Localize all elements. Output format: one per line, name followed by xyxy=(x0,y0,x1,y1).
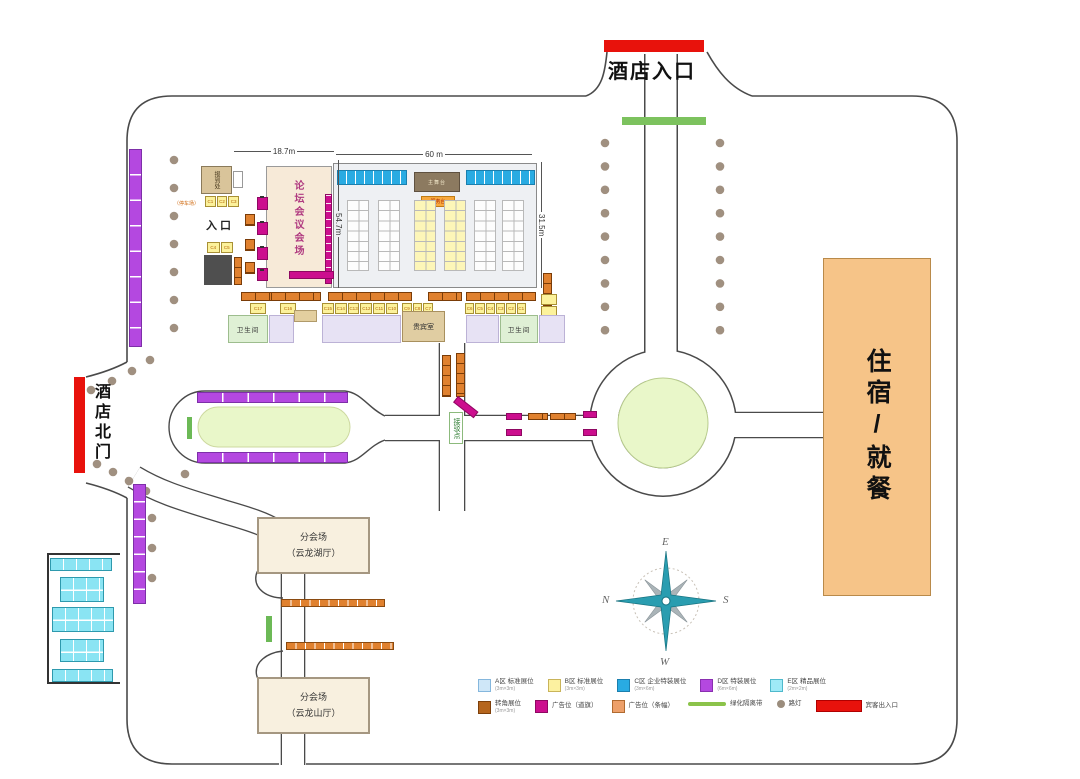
dimension-forum-depth: 54.7m xyxy=(334,160,343,288)
booth-orange-strip xyxy=(234,257,242,285)
ad-strip xyxy=(550,413,576,420)
legend-item: C区 企业特装展位(3m×6m) xyxy=(617,678,686,692)
legend-swatch xyxy=(777,700,785,708)
booth-yellow xyxy=(541,294,557,305)
legend-row-1: A区 标准展位(3m×3m)B区 标准展位(3m×3m)C区 企业特装展位(3m… xyxy=(478,678,840,692)
booth-orange xyxy=(245,214,255,226)
legend-item: E区 精品展位(2m×2m) xyxy=(770,678,826,692)
booth-cell: C5 xyxy=(221,242,234,253)
booth-orange xyxy=(245,239,255,251)
booth-block-cyan xyxy=(60,577,104,602)
booth-strip-purple-top xyxy=(197,392,348,403)
c-booth-group: C17C16 xyxy=(250,303,296,314)
booth-row-blue-left xyxy=(337,170,407,185)
seat-mark xyxy=(260,196,264,198)
ad-strip xyxy=(528,413,548,420)
booth-cell: C4 xyxy=(207,242,220,253)
corridor-strip xyxy=(466,315,499,343)
sub-venue-lake: 分会场 （云龙湖厅） xyxy=(257,517,370,574)
legend-item: A区 标准展位(3m×3m) xyxy=(478,678,534,692)
legend-swatch xyxy=(770,679,783,692)
ad-strip xyxy=(583,411,597,418)
vip-room: 贵宾室 xyxy=(402,311,445,342)
seat-mark xyxy=(260,246,264,248)
legend-swatch xyxy=(816,700,862,712)
booth-cell: C3 xyxy=(228,196,239,207)
booth-block-cyan xyxy=(52,607,114,632)
dimension-main-depth: 31.5m xyxy=(537,162,546,288)
booth-row-blue-right xyxy=(466,170,535,185)
booth-cell: C3 xyxy=(496,303,505,314)
legend-swatch xyxy=(478,679,491,692)
compass-rose xyxy=(616,551,716,651)
booth-row-orange-small xyxy=(286,642,394,650)
booth-row-orange xyxy=(271,292,321,301)
toilet-right: 卫生间 xyxy=(500,315,538,343)
corridor-strip xyxy=(269,315,294,343)
booth-row-orange xyxy=(241,292,275,301)
booth-row-cyan xyxy=(52,669,113,682)
toilet-left: 卫生间 xyxy=(228,315,268,343)
legend-item: B区 标准展位(3m×3m) xyxy=(548,678,604,692)
booth-orange xyxy=(245,262,255,274)
small-tag xyxy=(233,171,243,188)
booth-row-orange xyxy=(466,292,536,301)
c-booth-group: C15C14C13C12C11C10 xyxy=(322,303,398,314)
corridor-strip xyxy=(539,315,565,343)
registration-label: 报到处 xyxy=(212,171,221,189)
booth-block-cyan xyxy=(60,639,104,662)
legend-item: 广告位（道旗） xyxy=(535,700,598,713)
booth-cell: C12 xyxy=(360,303,372,314)
booth-magenta xyxy=(257,222,268,235)
forum-bottom-strip xyxy=(289,271,334,279)
west-lawn xyxy=(198,407,350,447)
kiosk xyxy=(294,310,317,322)
shuttle-point-label: 接驳点 xyxy=(449,412,463,444)
booth-cell: C15 xyxy=(322,303,334,314)
booth-column xyxy=(474,200,496,271)
booth-row-cyan xyxy=(50,558,112,571)
booth-cell: C11 xyxy=(373,303,385,314)
ad-strip-vertical xyxy=(442,355,451,397)
main-entrance-bar xyxy=(604,40,704,52)
legend-item: D区 特装展位(6m×6m) xyxy=(700,678,756,692)
legend-item: 宾客出入口 xyxy=(816,700,899,712)
booth-magenta xyxy=(257,197,268,210)
legend-item: 绿化隔离带 xyxy=(688,700,763,708)
main-entrance-label: 酒店入口 xyxy=(608,55,696,84)
c-booth-group: C6C5C4C3C2C1 xyxy=(465,303,526,314)
compass-west: W xyxy=(660,656,669,668)
booth-column xyxy=(502,200,524,271)
roundabout-lawn xyxy=(618,378,708,468)
ad-strip xyxy=(506,429,522,436)
corridor-strip xyxy=(322,315,401,343)
booth-cell: C10 xyxy=(386,303,398,314)
legend-swatch xyxy=(700,679,713,692)
reg-booth-box: C4C5 xyxy=(207,242,233,253)
legend-swatch xyxy=(478,701,491,714)
main-stage: 主舞台 xyxy=(414,172,460,192)
forum-hall-title: 论坛会议会场 xyxy=(290,180,305,280)
booth-row-orange xyxy=(428,292,462,301)
utility-building xyxy=(204,255,232,285)
booth-strip-purple-left xyxy=(129,149,142,347)
lodging-label: 住宿/就餐 xyxy=(859,348,895,506)
booth-strip-purple-left-lower xyxy=(133,484,146,604)
green-strip xyxy=(266,616,272,642)
legend-row-2: 转角展位(3m×3m)广告位（道旗）广告位（条幅）绿化隔离带路灯宾客出入口 xyxy=(478,700,912,714)
booth-column xyxy=(444,200,466,271)
lodging-building: 住宿/就餐 xyxy=(823,258,931,596)
booth-cell: C6 xyxy=(465,303,474,314)
entrance-small-label: 入口 xyxy=(206,217,234,233)
booth-cell: C1 xyxy=(517,303,526,314)
compass-east: E xyxy=(662,536,669,548)
ad-strip-vertical xyxy=(456,353,465,397)
green-belt-bar xyxy=(622,117,706,125)
legend-swatch xyxy=(612,700,625,713)
compass-north: N xyxy=(602,594,609,606)
ad-strip xyxy=(583,429,597,436)
compass-south: S xyxy=(723,594,729,606)
dimension-forum-width: 18.7m xyxy=(234,147,334,156)
map-canvas: 酒店入口 酒店北门 主舞台 服务台 论坛会议会场 18.7m 60 m 54.7… xyxy=(0,0,1080,779)
booth-cell: C14 xyxy=(335,303,347,314)
booth-cell: C4 xyxy=(486,303,495,314)
legend-item: 转角展位(3m×3m) xyxy=(478,700,521,714)
booth-magenta xyxy=(257,247,268,260)
booth-column xyxy=(347,200,369,271)
legend-item: 路灯 xyxy=(777,700,802,708)
booth-column xyxy=(414,200,436,271)
booth-cell: C2 xyxy=(506,303,515,314)
main-stage-label: 主舞台 xyxy=(428,179,446,186)
booth-cell: C5 xyxy=(475,303,484,314)
booth-row-orange xyxy=(328,292,412,301)
booth-row-orange-small xyxy=(281,599,385,607)
reg-booth-strip: C1C2C3 xyxy=(205,196,239,207)
booth-cell: C1 xyxy=(205,196,216,207)
ad-strip xyxy=(506,413,522,420)
seat-mark xyxy=(260,221,264,223)
legend-swatch xyxy=(688,702,726,706)
north-gate-label: 酒店北门 xyxy=(88,383,112,475)
booth-cell: C17 xyxy=(250,303,266,314)
legend-item: 广告位（条幅） xyxy=(612,700,675,713)
seat-mark xyxy=(260,269,264,271)
north-gate-bar xyxy=(74,377,85,473)
legend-swatch xyxy=(548,679,561,692)
booth-column xyxy=(378,200,400,271)
legend-swatch xyxy=(535,700,548,713)
booth-cell: C13 xyxy=(348,303,360,314)
registration-office: 报到处 xyxy=(201,166,232,194)
legend-swatch xyxy=(617,679,630,692)
booth-strip-purple-bottom xyxy=(197,452,348,463)
sub-venue-mountain: 分会场 （云龙山厅） xyxy=(257,677,370,734)
green-strip xyxy=(187,417,192,439)
booth-cell: C2 xyxy=(217,196,228,207)
parking-label: （停车场） xyxy=(174,200,199,207)
dimension-main-width: 60 m xyxy=(336,150,532,159)
